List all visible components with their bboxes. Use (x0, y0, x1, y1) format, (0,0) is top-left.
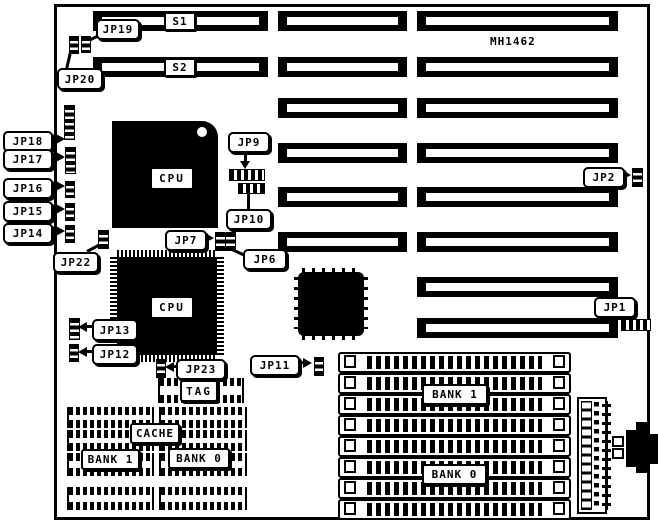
simm-socket (338, 415, 571, 436)
isa-slot-segment (278, 57, 407, 77)
chipset-chip (298, 272, 364, 336)
jp18-jumper (64, 105, 75, 140)
jp23-pointer-arrow (165, 362, 174, 372)
jp17-pointer-arrow (56, 152, 65, 162)
cache-chip (159, 487, 247, 510)
jp13-jumper (69, 318, 80, 340)
isa-slot (417, 98, 618, 118)
jp13-callout: JP13 (92, 319, 138, 341)
isa-slot-segment (278, 98, 407, 118)
simm-bank0-label: BANK 0 (422, 464, 487, 485)
jp17-callout: JP17 (3, 149, 53, 170)
jp6-callout: JP6 (243, 249, 287, 270)
simm-latch (344, 355, 356, 368)
isa-slot (417, 57, 618, 77)
cpu1-label: CPU (150, 167, 194, 190)
simm-latch (344, 460, 356, 473)
jp19-callout: JP19 (96, 19, 140, 40)
board-model-label: MH1462 (490, 35, 536, 48)
jp16-callout: JP16 (3, 178, 53, 199)
simm-latch (553, 397, 565, 410)
simm-latch (344, 481, 356, 494)
simm-latch (553, 355, 565, 368)
slot-s1-label: S1 (164, 12, 196, 31)
power-connector-pins (594, 402, 599, 509)
cache-label: CACHE (130, 423, 180, 444)
jp1-jumper (621, 319, 651, 331)
jp1-callout: JP1 (594, 297, 636, 318)
jp16-pointer-arrow (56, 181, 65, 191)
jp15-pointer-arrow (56, 204, 65, 214)
simm-latch (553, 502, 565, 515)
motherboard-diagram: MH1462 S1 S2 CPU CPU TAG CACHE BANK 1 (0, 0, 658, 527)
isa-slot (417, 11, 618, 31)
simm-latch (344, 376, 356, 389)
cpu2-label: CPU (150, 296, 194, 319)
simm-latch (553, 418, 565, 431)
power-connector-crosses (602, 401, 611, 510)
jp10-callout: JP10 (226, 209, 272, 230)
jp20-callout: JP20 (57, 68, 103, 90)
simm-bank1-label: BANK 1 (422, 384, 488, 405)
jp23-callout: JP23 (176, 359, 226, 380)
cache-bank1-label: BANK 1 (81, 449, 140, 470)
jp2-jumper (632, 168, 643, 187)
simm-socket (338, 436, 571, 457)
simm-latch (553, 481, 565, 494)
jp14-callout: JP14 (3, 223, 53, 244)
isa-slot (417, 143, 618, 163)
jp9-pointer-arrow (240, 161, 250, 169)
jp15-callout: JP15 (3, 201, 53, 222)
simm-latch (553, 439, 565, 452)
cpu1-pin1-dot (197, 127, 207, 137)
isa-slot (417, 232, 618, 252)
simm-latch (553, 460, 565, 473)
simm-latch (344, 397, 356, 410)
jp20-jumper (69, 36, 79, 54)
cpu2-pins-top (117, 250, 217, 257)
isa-slot (417, 187, 618, 207)
jp23-jumper (156, 359, 166, 378)
jp19-jumper (81, 36, 91, 53)
simm-latch (344, 439, 356, 452)
jp2-callout: JP2 (583, 167, 625, 188)
jp15-jumper (65, 203, 75, 221)
isa-slot-segment (278, 11, 407, 31)
keyboard-connector (648, 434, 658, 464)
jp11-jumper (314, 357, 324, 376)
isa-slot (417, 318, 618, 338)
jp22-jumper (98, 230, 109, 249)
jp12-pointer-arrow (78, 347, 87, 357)
simm-socket (338, 352, 571, 373)
jp12-callout: JP12 (92, 344, 138, 365)
jp14-jumper (65, 225, 75, 243)
jp22-callout: JP22 (53, 252, 99, 273)
keyboard-connector (636, 467, 650, 473)
simm-latch (553, 376, 565, 389)
isa-slot-segment (278, 232, 407, 252)
simm-latch (344, 418, 356, 431)
power-connector (577, 397, 607, 514)
jp12-jumper (69, 344, 79, 362)
simm-latch (344, 502, 356, 515)
isa-slot-segment (278, 143, 407, 163)
jp11-callout: JP11 (250, 355, 300, 376)
jp6-jumper (225, 232, 236, 251)
power-connector-cells (581, 401, 592, 510)
jp10-jumper (238, 183, 265, 194)
tag-label: TAG (180, 380, 218, 402)
isa-slot (417, 277, 618, 297)
keyboard-connector (626, 430, 650, 467)
jp16-jumper (65, 181, 75, 198)
jp11-pointer-arrow (303, 358, 312, 368)
cache-bank0-label: BANK 0 (168, 448, 230, 469)
keyboard-connector-tab (612, 436, 624, 447)
jp7-callout: JP7 (165, 230, 207, 251)
jp9-jumper (229, 169, 265, 181)
keyboard-connector-tab (612, 448, 624, 459)
jp17-jumper (65, 147, 76, 174)
cpu2-pins-right (217, 257, 224, 355)
jp14-pointer-arrow (56, 226, 65, 236)
cache-chip (67, 487, 154, 510)
isa-slot-segment (278, 187, 407, 207)
simm-socket (338, 499, 571, 520)
jp9-callout: JP9 (228, 132, 270, 153)
slot-s2-label: S2 (164, 58, 196, 77)
